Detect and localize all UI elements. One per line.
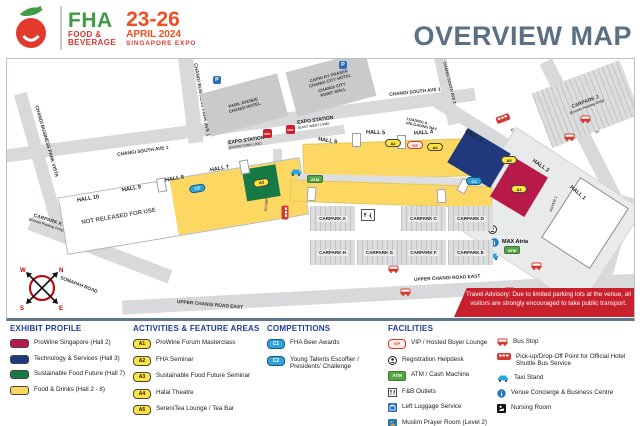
legend-label: Food & Drinks (Hall 2 - 8)	[34, 386, 105, 394]
legend-item: Registration Helpdesk	[388, 356, 496, 365]
legend-item: Food & Drinks (Hall 2 - 8)	[10, 386, 130, 395]
compass-w: W	[20, 268, 26, 274]
fnb-icon	[388, 388, 397, 397]
legend-label: Technology & Services (Hall 3)	[34, 355, 120, 363]
c2-badge: C2	[267, 356, 285, 366]
registration-icon	[388, 356, 397, 365]
carpark-label: CARPARK F	[408, 250, 438, 256]
mrt-badge: MRT	[286, 125, 295, 134]
legend-label: FHA Beer Awards	[290, 339, 340, 347]
legend-item: Sustainable Food Future (Hall 7)	[10, 370, 130, 379]
legend-item: iVenue Concierge & Business Centre	[497, 389, 637, 398]
compass-e: E	[59, 306, 63, 311]
atm-badge: ATM	[388, 371, 406, 381]
legend-item: VIPVIP / Hosted Buyer Lounge	[388, 339, 496, 349]
info-icon: i	[497, 389, 506, 398]
halls-8-7-yellow: C2 A3	[169, 158, 308, 235]
legend-label: F&B Outlets	[402, 388, 436, 396]
not-released-label: NOT RELEASED FOR USE	[81, 208, 156, 226]
color-swatch	[10, 339, 29, 348]
bus-stop-icon	[531, 262, 542, 270]
carpark-c: CARPARK C	[401, 206, 446, 231]
atm-badge: ATM	[504, 246, 520, 254]
logo-month: APRIL 2024	[126, 30, 196, 40]
legend-label: Sustainable Food Future (Hall 7)	[34, 370, 125, 378]
expo-station-downtown: EXPO STATION (DOWNTOWN LINE)	[228, 136, 265, 150]
legend-activities: ACTIVITIES & FEATURE AREAS A1ProWine For…	[133, 324, 265, 422]
logo-dates: 23-26	[126, 9, 196, 30]
legend-item: Left Luggage Service	[388, 403, 496, 412]
carpark-label: CARPARK D	[455, 216, 486, 222]
building-label: PARK AVENUE CHANGI HOTEL	[227, 96, 261, 114]
legend-item: F&B Outlets	[388, 388, 496, 397]
lift-icon	[361, 209, 375, 221]
c1-badge: C1	[267, 339, 285, 349]
legend-item: C1FHA Beer Awards	[267, 339, 379, 349]
taxi-icon	[497, 374, 509, 382]
legend-item: ProWine Singapore (Hall 2)	[10, 339, 130, 348]
carpark-label: CARPARK H	[317, 250, 348, 256]
compass-rose: W N S E	[19, 265, 65, 311]
parking-badge: P	[213, 76, 221, 84]
legend-label: ProWine Singapore (Hall 2)	[34, 339, 111, 347]
a2-badge: A2	[385, 139, 401, 147]
legend-facilities: FACILITIES VIPVIP / Hosted Buyer Lounge …	[388, 324, 496, 426]
legend-item: ATMATM / Cash Machine	[388, 371, 496, 381]
legend-item: C2Young Talents Escoffier / Presidents' …	[267, 356, 379, 371]
carpark-f: CARPARK F	[401, 240, 446, 265]
entrance-marker	[239, 159, 250, 174]
compass-s: S	[20, 306, 24, 311]
color-swatch	[10, 355, 29, 364]
logo-beverage: BEVERAGE	[68, 39, 116, 47]
bus-stop-icon	[400, 288, 411, 296]
bus-stop-icon	[580, 115, 591, 123]
logo-divider	[60, 6, 62, 50]
legend-label: Nursing Room	[511, 404, 551, 412]
legend-label: Registration Helpdesk	[402, 356, 464, 364]
legend-heading: COMPETITIONS	[267, 324, 379, 333]
logo-wordmark: FHA FOOD & BEVERAGE	[68, 10, 116, 47]
carpark-a: CARPARK A	[310, 206, 355, 231]
carpark-label: CARPARK C	[408, 216, 439, 222]
bus-stop-icon	[564, 133, 575, 141]
a5-badge: A5	[501, 156, 517, 164]
legend-label: Muslim Prayer Room (Level 2)	[402, 419, 487, 426]
legend-exhibit-profile: EXHIBIT PROFILE ProWine Singapore (Hall …	[10, 324, 130, 401]
a1-badge: A1	[133, 339, 151, 349]
a4-badge: A4	[133, 389, 151, 399]
legend-item: A3Sustainable Food Future Seminar	[133, 372, 265, 382]
carpark-e: CARPARK E	[448, 240, 493, 265]
legend-item: Taxi Stand	[497, 374, 637, 382]
legend-item: Technology & Services (Hall 3)	[10, 355, 130, 364]
legend-label: VIP / Hosted Buyer Lounge	[411, 339, 487, 347]
halls-10-to-7-strip: NOT RELEASED FOR USE C2 A3	[58, 157, 309, 255]
prayer-room-icon	[388, 419, 397, 426]
legend-label: Taxi Stand	[514, 374, 543, 382]
logo-venue: SINGAPORE EXPO	[126, 41, 196, 48]
left-luggage-icon	[388, 403, 397, 412]
vip-badge: VIP	[407, 141, 423, 149]
carpark-d: CARPARK D	[448, 206, 493, 231]
a5-badge: A5	[133, 405, 151, 415]
color-swatch	[10, 370, 29, 379]
shuttle-icon	[495, 113, 511, 125]
legend-item: A5SereniTea Lounge / Tea Bar	[133, 405, 265, 415]
compass-n: N	[59, 268, 63, 274]
venue-map: CHANGI BUSINESS PARK AVE 1 CHANGI BUSINE…	[6, 58, 635, 321]
legend-heading: FACILITIES	[388, 324, 496, 333]
road-label: CHANGI SOUTH AVE 1	[117, 146, 169, 158]
header: FHA FOOD & BEVERAGE 23-26 APRIL 2024 SIN…	[0, 0, 640, 58]
legend-label: Sustainable Food Future Seminar	[156, 372, 250, 380]
legend-heading: ACTIVITIES & FEATURE AREAS	[133, 324, 265, 333]
max-atria-label: MAX Atria	[502, 239, 528, 245]
fha-logo: FHA FOOD & BEVERAGE 23-26 APRIL 2024 SIN…	[12, 5, 196, 51]
entrance-marker	[352, 133, 361, 147]
road-label: SOMAPAH ROAD	[59, 276, 98, 295]
legend-label: Halal Theatre	[156, 389, 194, 397]
legend-item: A1ProWine Forum Masterclass	[133, 339, 265, 349]
carpark-h: CARPARK H	[310, 240, 355, 265]
logo-dates-block: 23-26 APRIL 2024 SINGAPORE EXPO	[126, 9, 196, 48]
legend-facilities-col2: Bus Stop Pick-up/Drop-Off Point for Offi…	[497, 338, 637, 420]
nursing-icon	[497, 404, 506, 413]
legend-item: Nursing Room	[497, 404, 637, 413]
c2-badge: C2	[189, 183, 206, 194]
svg-text:i: i	[501, 390, 503, 397]
atm-badge: ATM	[307, 175, 323, 183]
legend-item: Pick-up/Drop-Off Point for Official Hote…	[497, 353, 637, 368]
legend-item: Bus Stop	[497, 338, 637, 346]
legend-label: Young Talents Escoffier / Presidents' Ch…	[290, 356, 379, 371]
logo-fha: FHA	[68, 10, 116, 31]
c1-badge: C1	[466, 177, 482, 185]
legend-competitions: COMPETITIONS C1FHA Beer Awards C2Young T…	[267, 324, 379, 377]
svg-text:i: i	[494, 240, 496, 247]
bus-stop-icon	[497, 338, 508, 346]
legend-label: FHA Seminar	[156, 356, 193, 364]
entrance-marker	[307, 187, 317, 202]
legend-item: Muslim Prayer Room (Level 2)	[388, 419, 496, 426]
legend-item: A2FHA Seminar	[133, 356, 265, 366]
page-title: OVERVIEW MAP	[413, 21, 632, 52]
legend-item: A4Halal Theatre	[133, 389, 265, 399]
legend-label: Venue Concierge & Business Centre	[511, 389, 613, 397]
carpark-label: CARPARK A	[317, 216, 348, 222]
vip-badge: VIP	[388, 339, 406, 349]
carpark-label: CARPARK G	[364, 250, 395, 256]
parking-badge: P	[339, 61, 347, 69]
a3-badge: A3	[133, 372, 151, 382]
legend-heading: EXHIBIT PROFILE	[10, 324, 130, 333]
taxi-icon	[290, 168, 302, 176]
legend-label: Bus Stop	[513, 338, 539, 346]
shuttle-icon	[282, 206, 289, 220]
legend-label: SereniTea Lounge / Tea Bar	[156, 405, 234, 413]
carpark-label: CARPARK E	[455, 250, 485, 256]
a2-badge: A2	[133, 356, 151, 366]
shuttle-icon	[497, 353, 511, 360]
legend-label: ProWine Forum Masterclass	[156, 339, 235, 347]
legend: EXHIBIT PROFILE ProWine Singapore (Hall …	[0, 322, 640, 426]
hall-label: HALL 5	[366, 130, 385, 137]
color-swatch	[10, 386, 29, 395]
a4-badge: A4	[427, 143, 443, 151]
apple-logo-icon	[12, 5, 54, 51]
legend-label: Pick-up/Drop-Off Point for Official Hote…	[516, 353, 637, 368]
carpark-g: CARPARK G	[357, 240, 402, 265]
overview-map-page: FHA FOOD & BEVERAGE 23-26 APRIL 2024 SIN…	[0, 0, 640, 426]
hall-label: HALL 4	[414, 129, 434, 137]
entrance-marker	[437, 189, 447, 204]
legend-label: ATM / Cash Machine	[411, 371, 469, 379]
a3-badge: A3	[253, 177, 270, 188]
bus-stop-icon	[388, 265, 399, 273]
legend-label: Left Luggage Service	[402, 403, 462, 411]
a1-badge: A1	[511, 185, 527, 193]
travel-advisory-banner: Travel Advisory: Due to limited parking …	[454, 288, 635, 317]
